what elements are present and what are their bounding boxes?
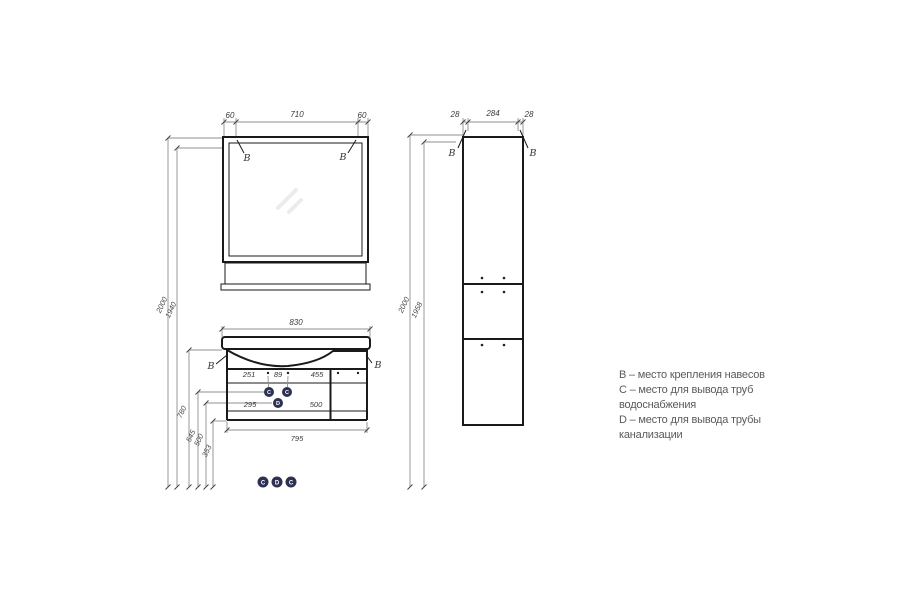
dim-column-height-total: 2000 — [396, 295, 412, 316]
furniture-drawing-svg: 2000 1940 780 545 500 353 60 710 60 B B — [0, 0, 900, 600]
vanity-sink-apron-curve — [227, 350, 367, 366]
legend-line-d-wrap: канализации — [619, 429, 683, 441]
column-mount-label-right: B — [529, 148, 537, 159]
dim-column-width: 284 — [485, 109, 500, 118]
floor-marker-c1: C — [258, 477, 269, 488]
mirror-front-view: B B — [221, 137, 370, 290]
vanity-mount-label-right: B — [374, 360, 382, 371]
dim-vanity-width-bottom: 795 — [291, 434, 304, 443]
water-supply-marker-1: C — [264, 387, 274, 397]
column-height-dimensions: 2000 1958 — [396, 133, 463, 490]
dim-vanity-width-top: 830 — [289, 318, 303, 327]
dim-mirror-right-offset: 60 — [358, 111, 367, 120]
mount-leader-right — [348, 140, 356, 153]
floor-pipe-markers: C D C — [258, 477, 297, 488]
left-height-dimensions: 2000 1940 780 545 500 353 — [154, 136, 272, 490]
svg-text:C: C — [285, 390, 289, 396]
drain-marker: D — [273, 398, 283, 408]
dim-hole-offset-left: 251 — [242, 370, 256, 379]
mirror-mount-label-right: B — [339, 152, 347, 163]
dim-column-left-offset: 28 — [450, 110, 460, 119]
svg-text:C: C — [267, 390, 271, 396]
legend-line-c-wrap: водоснабжения — [619, 399, 696, 411]
dim-mirror-left-offset: 60 — [226, 111, 235, 120]
legend-line-c: C – место для вывода труб — [619, 384, 753, 396]
column-body — [463, 137, 523, 425]
column-front-view: B B — [448, 130, 537, 425]
floor-marker-c2: C — [286, 477, 297, 488]
mirror-shelf-lip — [221, 284, 370, 290]
vanity-countertop — [222, 337, 370, 349]
mirror-mount-label-left: B — [243, 153, 251, 164]
legend: B – место крепления навесов C – место дл… — [619, 369, 765, 441]
legend-line-b: B – место крепления навесов — [619, 369, 765, 381]
water-supply-marker-2: C — [282, 387, 292, 397]
svg-text:D: D — [275, 480, 280, 486]
mirror-top-dimensions: 60 710 60 — [222, 110, 371, 136]
dim-column-height-body: 1958 — [409, 300, 425, 320]
vanity-bottom-dimension: 795 — [225, 422, 370, 443]
dim-hole-offset-right: 455 — [311, 370, 324, 379]
vanity-mount-label-left: B — [207, 361, 215, 372]
dim-drain-offset-left: 295 — [243, 400, 257, 409]
legend-line-d: D – место для вывода трубы — [619, 414, 761, 426]
column-mount-label-left: B — [448, 148, 456, 159]
vanity-mount-leader-left — [216, 355, 227, 364]
svg-text:C: C — [261, 480, 266, 486]
vanity-front-view: B B — [207, 337, 382, 420]
floor-marker-d: D — [272, 477, 283, 488]
vanity-top-dimension: 830 — [220, 318, 373, 337]
mirror-shelf — [225, 263, 366, 284]
dim-column-right-offset: 28 — [524, 110, 534, 119]
technical-drawing-page: 2000 1940 780 545 500 353 60 710 60 B B — [0, 0, 900, 600]
mount-leader-left — [237, 140, 244, 153]
svg-text:D: D — [276, 401, 280, 407]
mirror-reflection-watermark — [278, 190, 301, 212]
column-hinge-dots — [481, 277, 506, 347]
dim-mirror-width: 710 — [290, 110, 304, 119]
dim-hole-spacing: 89 — [274, 370, 283, 379]
dim-drain-offset-right: 500 — [310, 400, 323, 409]
svg-text:C: C — [289, 480, 294, 486]
dim-height-bottom: 353 — [200, 443, 214, 459]
